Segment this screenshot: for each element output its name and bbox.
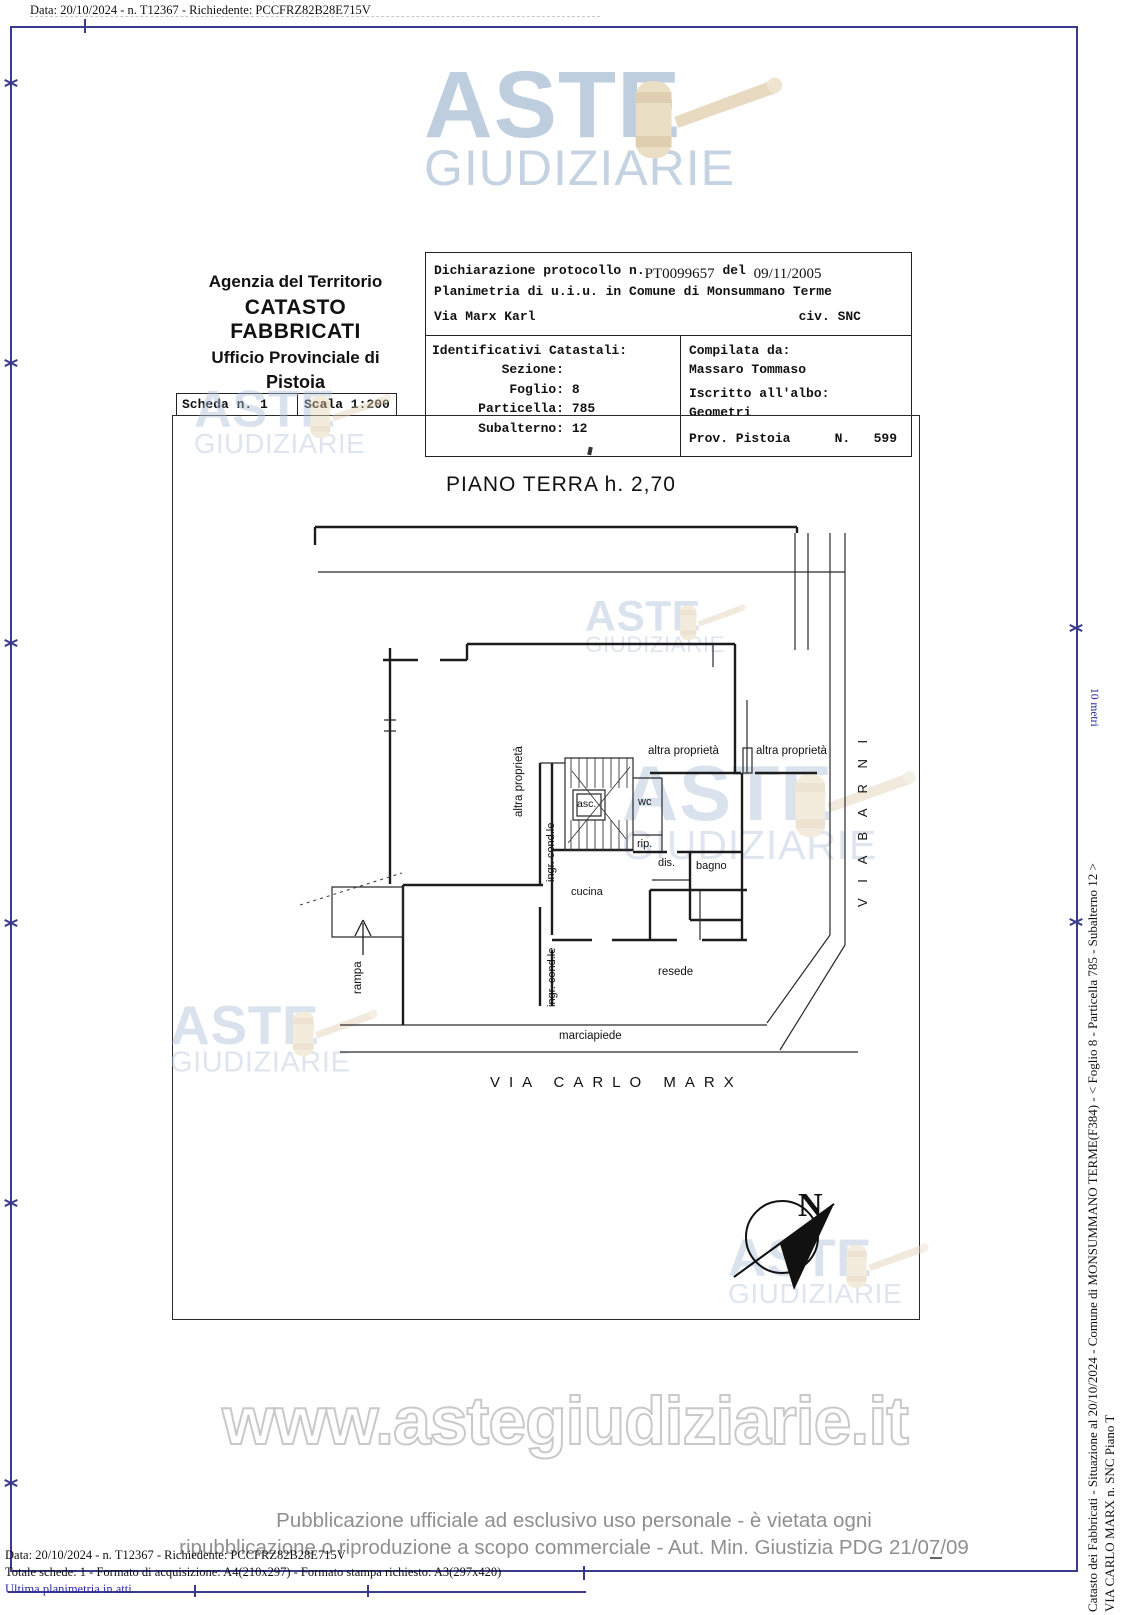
planimetria-line: Planimetria di u.i.u. in Comune di Monsu… (434, 282, 903, 302)
scan-artifact-line (30, 16, 600, 17)
north-compass-icon: N (722, 1172, 862, 1322)
side-cadastral-reference: Catasto dei Fabbricati - Situazione al 2… (1085, 863, 1101, 1612)
registration-tick (194, 1585, 196, 1597)
registration-tick (4, 76, 18, 90)
agency-line4: Pistoia (178, 372, 413, 393)
label-ingr-condle-1: ingr. cond.le (545, 823, 557, 882)
registration-tick (84, 19, 86, 33)
label-altra-proprieta-top: altra proprietà (648, 745, 719, 757)
plan-title: PIANO TERRA h. 2,70 (446, 473, 676, 497)
registration-tick (1069, 915, 1083, 929)
street-label-via-barni: V I A B A R N I (855, 734, 870, 907)
footer-line2: Totale schede: 1 - Formato di acquisizio… (5, 1564, 501, 1581)
protocol-number: PT0099657 (645, 266, 715, 282)
scale-note: 10 metri (1088, 688, 1100, 727)
field-value: 785 (572, 401, 595, 416)
compilata-title: Compilata da: (689, 341, 903, 361)
compilata-name: Massaro Tommaso (689, 360, 903, 380)
scheda-number: Scheda n. 1 (177, 394, 298, 415)
registration-tick (367, 1585, 369, 1597)
registration-tick (4, 1196, 18, 1210)
registration-tick (4, 1476, 18, 1490)
cadastral-floorplan-page: { "header": { "line": "Data: 20/10/2024 … (0, 0, 1148, 1615)
registration-tick (4, 636, 18, 650)
thin-walls (318, 533, 858, 1052)
registration-tick (4, 916, 18, 930)
scheda-scala-box: Scheda n. 1 Scala 1:200 (176, 393, 397, 416)
street-label-via-carlo-marx: VIA CARLO MARX (490, 1074, 743, 1091)
identificativi-title: Identificativi Catastali: (432, 341, 674, 361)
north-letter: N (798, 1187, 823, 1224)
field-label: Foglio: (432, 380, 564, 400)
label-asc: asc. (577, 798, 596, 810)
agency-line1: Agenzia del Territorio (178, 272, 413, 292)
declaration-row: Dichiarazione protocollo n.PT0099657 del… (426, 253, 911, 336)
footer-line1: Data: 20/10/2024 - n. T12367 - Richieden… (5, 1547, 346, 1564)
protocol-date: 09/11/2005 (754, 266, 822, 282)
label-altra-proprieta-right: altra proprietà (756, 745, 827, 757)
del-label: del (715, 263, 754, 278)
label-dis: dis. (658, 857, 675, 869)
street-name: Via Marx Karl (434, 309, 535, 324)
label-wc: wc (638, 796, 651, 808)
field-value: 8 (572, 382, 580, 397)
disclaimer-line1: Pubblicazione ufficiale ad esclusivo uso… (0, 1508, 1148, 1535)
scala-value: Scala 1:200 (298, 394, 396, 415)
registration-tick (583, 1566, 585, 1580)
agency-line2: CATASTO FABBRICATI (178, 296, 413, 344)
label-rampa: rampa (352, 961, 364, 994)
field-label: Sezione: (432, 360, 564, 380)
label-rip: rip. (637, 838, 652, 850)
outer-walls (315, 527, 817, 1025)
protocol-label: Dichiarazione protocollo n. (434, 263, 645, 278)
agency-line3: Ufficio Provinciale di (178, 348, 413, 368)
label-resede: resede (658, 966, 693, 978)
registration-tick (4, 356, 18, 370)
albo-label: Iscritto all'albo: (689, 384, 903, 404)
civic-number: civ. SNC (799, 307, 861, 327)
registration-tick (1069, 621, 1083, 635)
agency-block: Agenzia del Territorio CATASTO FABBRICAT… (178, 272, 413, 393)
footer-line3: Ultima planimetria in atti (5, 1581, 132, 1598)
label-ingr-condle-2: ingr. cond.le (546, 948, 558, 1007)
label-altra-proprieta-left: altra proprietà (513, 746, 525, 817)
url-watermark: www.astegiudiziarie.it (222, 1382, 908, 1460)
label-bagno: bagno (696, 860, 727, 872)
label-cucina: cucina (571, 886, 603, 898)
label-marciapiede: marciapiede (559, 1030, 622, 1042)
rampa-guide-line (300, 873, 402, 905)
